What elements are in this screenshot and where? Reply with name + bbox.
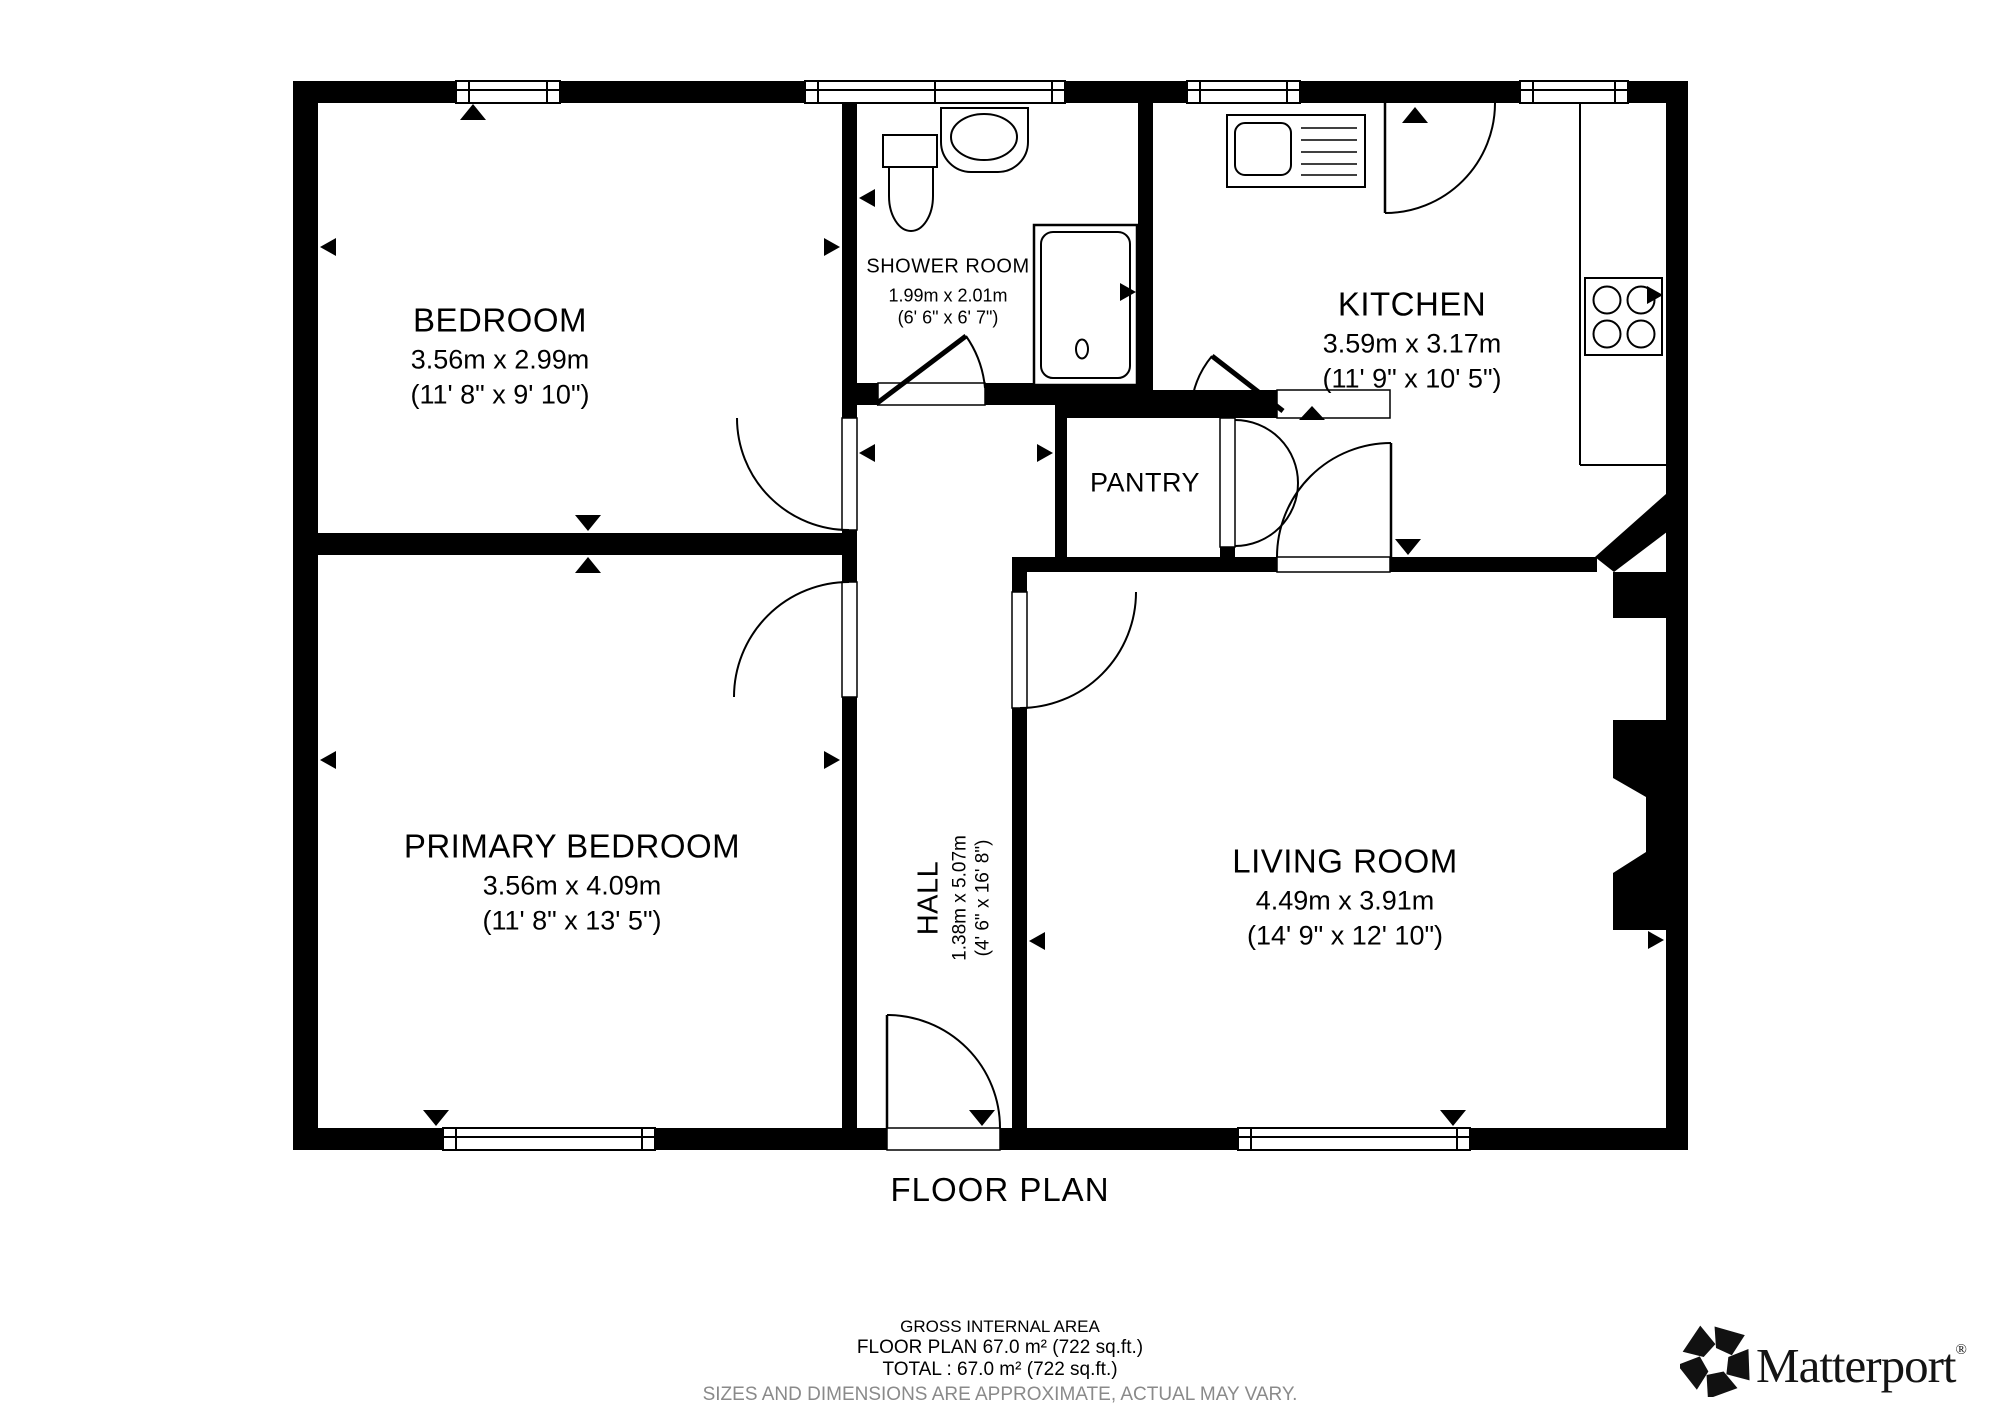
kitchen-sink-icon <box>1227 115 1365 187</box>
window <box>805 81 1065 103</box>
door-arc <box>966 336 985 388</box>
room-label-bedroom: BEDROOM 3.56m x 2.99m (11' 8" x 9' 10") <box>410 299 589 412</box>
room-name: SHOWER ROOM <box>866 253 1029 279</box>
window <box>443 1128 655 1150</box>
floor-plan-area: FLOOR PLAN 67.0 m² (722 sq.ft.) <box>703 1337 1298 1359</box>
floor-plan-page: BEDROOM 3.56m x 2.99m (11' 8" x 9' 10") … <box>0 0 2000 1414</box>
room-name: PRIMARY BEDROOM <box>404 825 740 868</box>
room-label-primary-bedroom: PRIMARY BEDROOM 3.56m x 4.09m (11' 8" x … <box>404 825 740 938</box>
window <box>1187 81 1300 103</box>
room-name: LIVING ROOM <box>1232 840 1458 883</box>
room-label-living-room: LIVING ROOM 4.49m x 3.91m (14' 9" x 12' … <box>1232 840 1458 953</box>
door-threshold <box>887 1128 1000 1150</box>
room-label-hall: HALL 1.38m x 5.07m (4' 6" x 16' 8") <box>910 835 995 961</box>
door-arc <box>737 418 849 530</box>
window <box>1520 81 1628 103</box>
matterport-pinwheel-icon <box>1680 1325 1752 1397</box>
room-label-pantry: PANTRY <box>1090 465 1200 500</box>
room-dim-metric: 1.38m x 5.07m <box>948 835 972 961</box>
matterport-logo: Matterport® <box>1680 1325 1990 1405</box>
room-dim-imperial: (4' 6" x 16' 8") <box>972 835 996 961</box>
toilet-icon <box>883 135 937 231</box>
room-dim-imperial: (11' 8" x 13' 5") <box>404 903 740 938</box>
room-name: HALL <box>910 835 948 961</box>
total-area: TOTAL : 67.0 m² (722 sq.ft.) <box>703 1359 1298 1381</box>
area-summary: GROSS INTERNAL AREA FLOOR PLAN 67.0 m² (… <box>703 1317 1298 1406</box>
window <box>456 81 560 103</box>
room-name: BEDROOM <box>410 299 589 342</box>
room-label-shower-room: SHOWER ROOM 1.99m x 2.01m (6' 6" x 6' 7"… <box>866 253 1029 328</box>
door-arc <box>1235 483 1298 546</box>
room-dim-metric: 3.56m x 2.99m <box>410 342 589 377</box>
room-name: PANTRY <box>1090 465 1200 500</box>
room-dim-imperial: (14' 9" x 12' 10") <box>1232 918 1458 953</box>
window <box>1238 1128 1470 1150</box>
room-dim-imperial: (11' 8" x 9' 10") <box>410 377 589 412</box>
door-arc <box>1385 103 1495 213</box>
room-dim-metric: 3.59m x 3.17m <box>1322 326 1501 361</box>
door-arc <box>1235 420 1298 483</box>
bathtub-icon <box>1034 225 1137 385</box>
door-arc <box>734 582 849 697</box>
room-dim-imperial: (11' 9" x 10' 5") <box>1322 361 1501 396</box>
room-dim-metric: 3.56m x 4.09m <box>404 868 740 903</box>
gross-internal-area-label: GROSS INTERNAL AREA <box>703 1317 1298 1337</box>
door-leaf <box>1012 592 1027 708</box>
room-dim-metric: 1.99m x 2.01m <box>866 285 1029 307</box>
bifold-door <box>1220 418 1235 547</box>
walls <box>293 81 1688 1150</box>
door-threshold <box>1277 557 1390 572</box>
disclaimer: SIZES AND DIMENSIONS ARE APPROXIMATE, AC… <box>703 1384 1298 1406</box>
sink-icon <box>941 108 1028 172</box>
door-leaf <box>842 582 857 697</box>
room-dim-imperial: (6' 6" x 6' 7") <box>866 307 1029 329</box>
chimney-breast <box>1613 572 1666 618</box>
door-threshold <box>878 383 985 405</box>
room-name: KITCHEN <box>1322 283 1501 326</box>
door-leaf <box>842 418 857 530</box>
room-label-kitchen: KITCHEN 3.59m x 3.17m (11' 9" x 10' 5") <box>1322 283 1501 396</box>
door-arc <box>1020 592 1136 708</box>
room-dim-metric: 4.49m x 3.91m <box>1232 883 1458 918</box>
page-title: FLOOR PLAN <box>890 1171 1109 1209</box>
brand-wordmark: Matterport® <box>1756 1337 1967 1394</box>
registered-mark: ® <box>1956 1342 1967 1358</box>
